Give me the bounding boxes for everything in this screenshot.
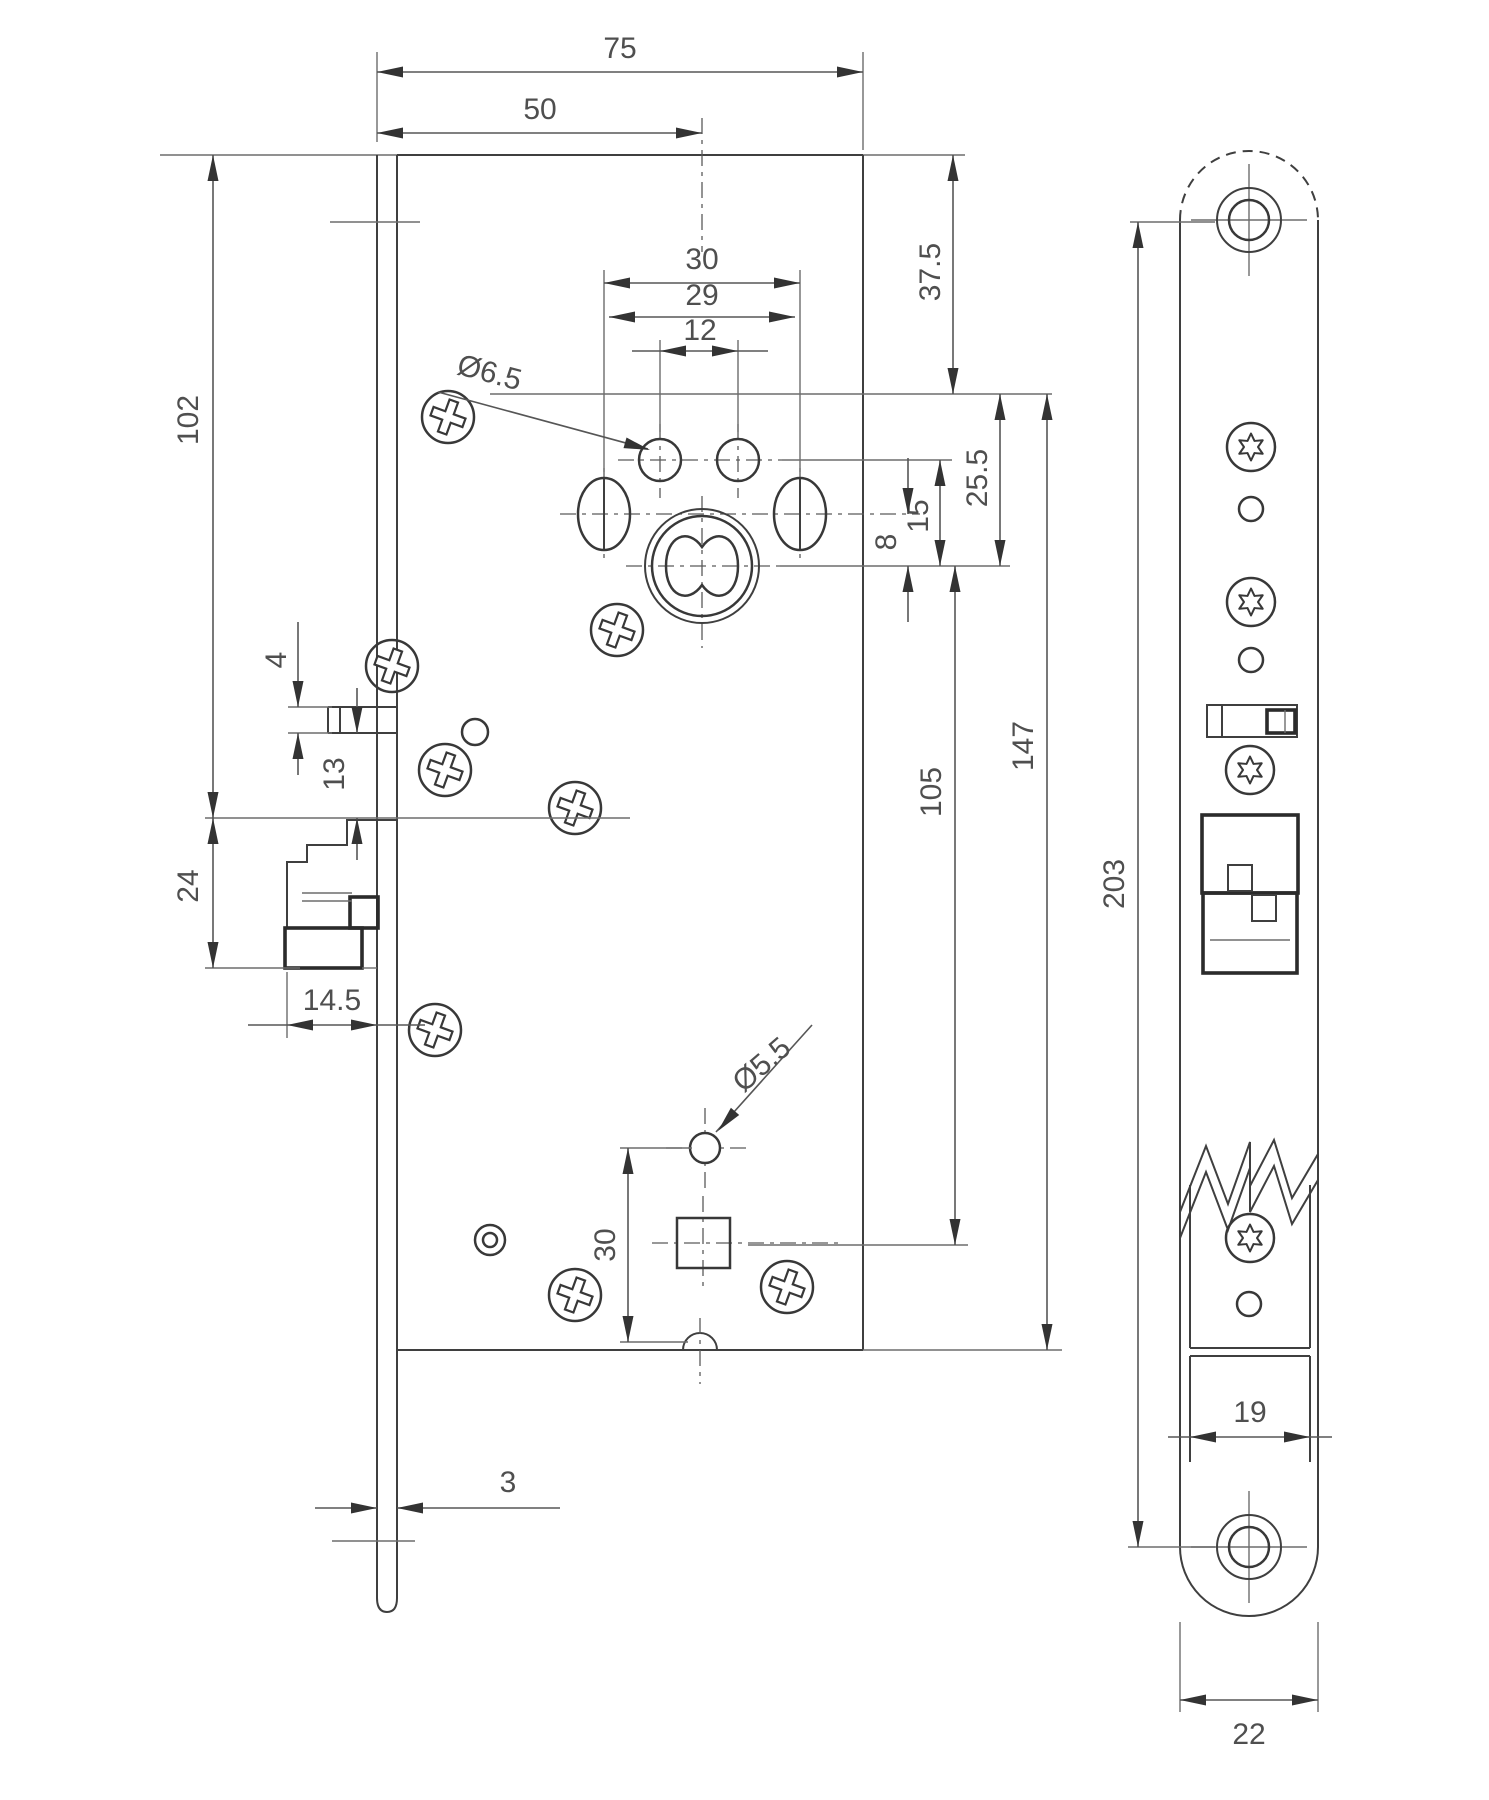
dim-label-slot-span-centers: 29	[685, 279, 718, 312]
deadbolt-front-view	[1202, 815, 1298, 973]
dim-label-small-hole-dia: Ø5.5	[726, 1031, 797, 1099]
technical-drawing: 75 50 30 29 12 Ø6.5 102 24	[0, 0, 1489, 1800]
dim-label-top-hole-dia: Ø6.5	[454, 348, 525, 397]
phillips-screw	[761, 1261, 813, 1313]
drawing-canvas: 75 50 30 29 12 Ø6.5 102 24	[0, 0, 1489, 1800]
dim-label-top-row-to-cyl: 25.5	[961, 449, 994, 507]
dim-label-latch-throw: 14.5	[303, 984, 361, 1017]
dim-label-aux-to-latch: 13	[318, 757, 351, 790]
small-hole	[1237, 1292, 1261, 1316]
dim-label-hole-pair-span: 12	[683, 314, 716, 347]
torx-screw	[1226, 1214, 1274, 1262]
dim-label-latch-height: 24	[172, 869, 205, 902]
dim-label-square-to-bottom: 30	[589, 1228, 622, 1261]
lock-case-side-view	[160, 118, 1062, 1612]
latch-bolt-side-view	[285, 707, 397, 968]
torx-screw	[1226, 746, 1274, 794]
torx-screw	[1227, 578, 1275, 626]
break-line	[1180, 1140, 1318, 1238]
phillips-screw	[549, 1269, 601, 1321]
small-fixing-hole	[690, 1133, 720, 1163]
latch-guide	[350, 897, 378, 928]
dim-label-case-depth: 75	[603, 32, 636, 65]
dim-label-slot-span-outer: 30	[685, 243, 718, 276]
rivet-inner	[483, 1233, 497, 1247]
dimensions-right-view: 203 19 22	[1098, 222, 1332, 1751]
dimensions-left-view: 75 50 30 29 12 Ø6.5 102 24	[172, 32, 1053, 1514]
phillips-screw	[366, 640, 418, 692]
latch-head	[285, 928, 362, 968]
torx-screw	[1227, 423, 1275, 471]
phillips-screw	[409, 1004, 461, 1056]
latch-front-view	[1207, 705, 1297, 737]
phillips-screw	[422, 391, 474, 443]
dim-label-aux-step: 4	[260, 652, 293, 669]
small-hole	[1239, 497, 1263, 521]
dim-label-plate-inner-width: 19	[1233, 1396, 1266, 1429]
dim-label-plate-width: 22	[1232, 1718, 1265, 1751]
dim-label-screw-centers: 203	[1098, 859, 1131, 909]
dim-label-case-height: 147	[1007, 721, 1040, 771]
dim-label-backset: 50	[523, 93, 556, 126]
small-hole	[1239, 648, 1263, 672]
faceplate-edge-view	[330, 155, 420, 1612]
dim-label-top-to-latch: 102	[172, 395, 205, 445]
cylinder-hole-cluster	[560, 118, 1010, 648]
plate-screw-top	[1191, 164, 1307, 276]
phillips-screw	[549, 782, 601, 834]
phillips-screw	[591, 604, 643, 656]
dim-label-slots-to-cyl: 8	[870, 534, 903, 551]
dim-label-cyl-to-square: 105	[915, 767, 948, 817]
dim-label-plate-thickness: 3	[500, 1466, 517, 1499]
dim-label-top-to-hole-row: 37.5	[914, 243, 947, 301]
phillips-screw	[419, 744, 471, 796]
pin-hole	[462, 719, 488, 745]
